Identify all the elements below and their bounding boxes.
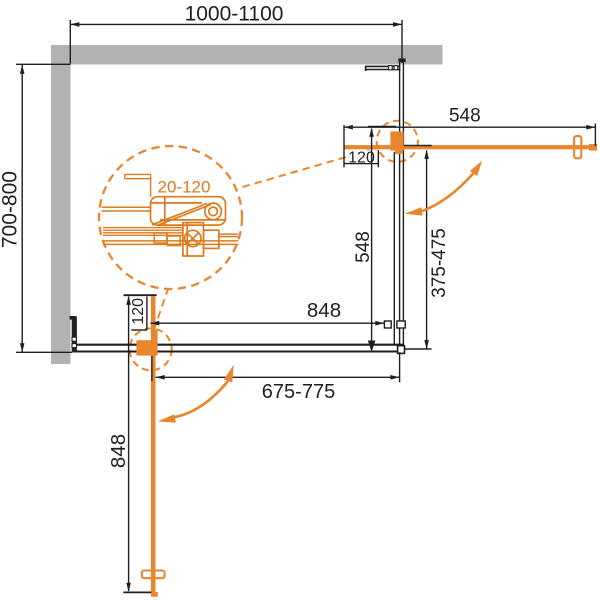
svg-text:848: 848 <box>307 299 341 322</box>
svg-text:120: 120 <box>130 298 147 325</box>
svg-text:548: 548 <box>353 231 374 263</box>
svg-text:375-475: 375-475 <box>429 228 450 298</box>
svg-text:1000-1100: 1000-1100 <box>185 3 284 26</box>
svg-text:548: 548 <box>449 106 481 127</box>
svg-text:700-800: 700-800 <box>0 171 22 248</box>
svg-text:20-120: 20-120 <box>158 178 211 197</box>
svg-text:848: 848 <box>107 434 130 468</box>
svg-text:675-775: 675-775 <box>262 381 335 403</box>
